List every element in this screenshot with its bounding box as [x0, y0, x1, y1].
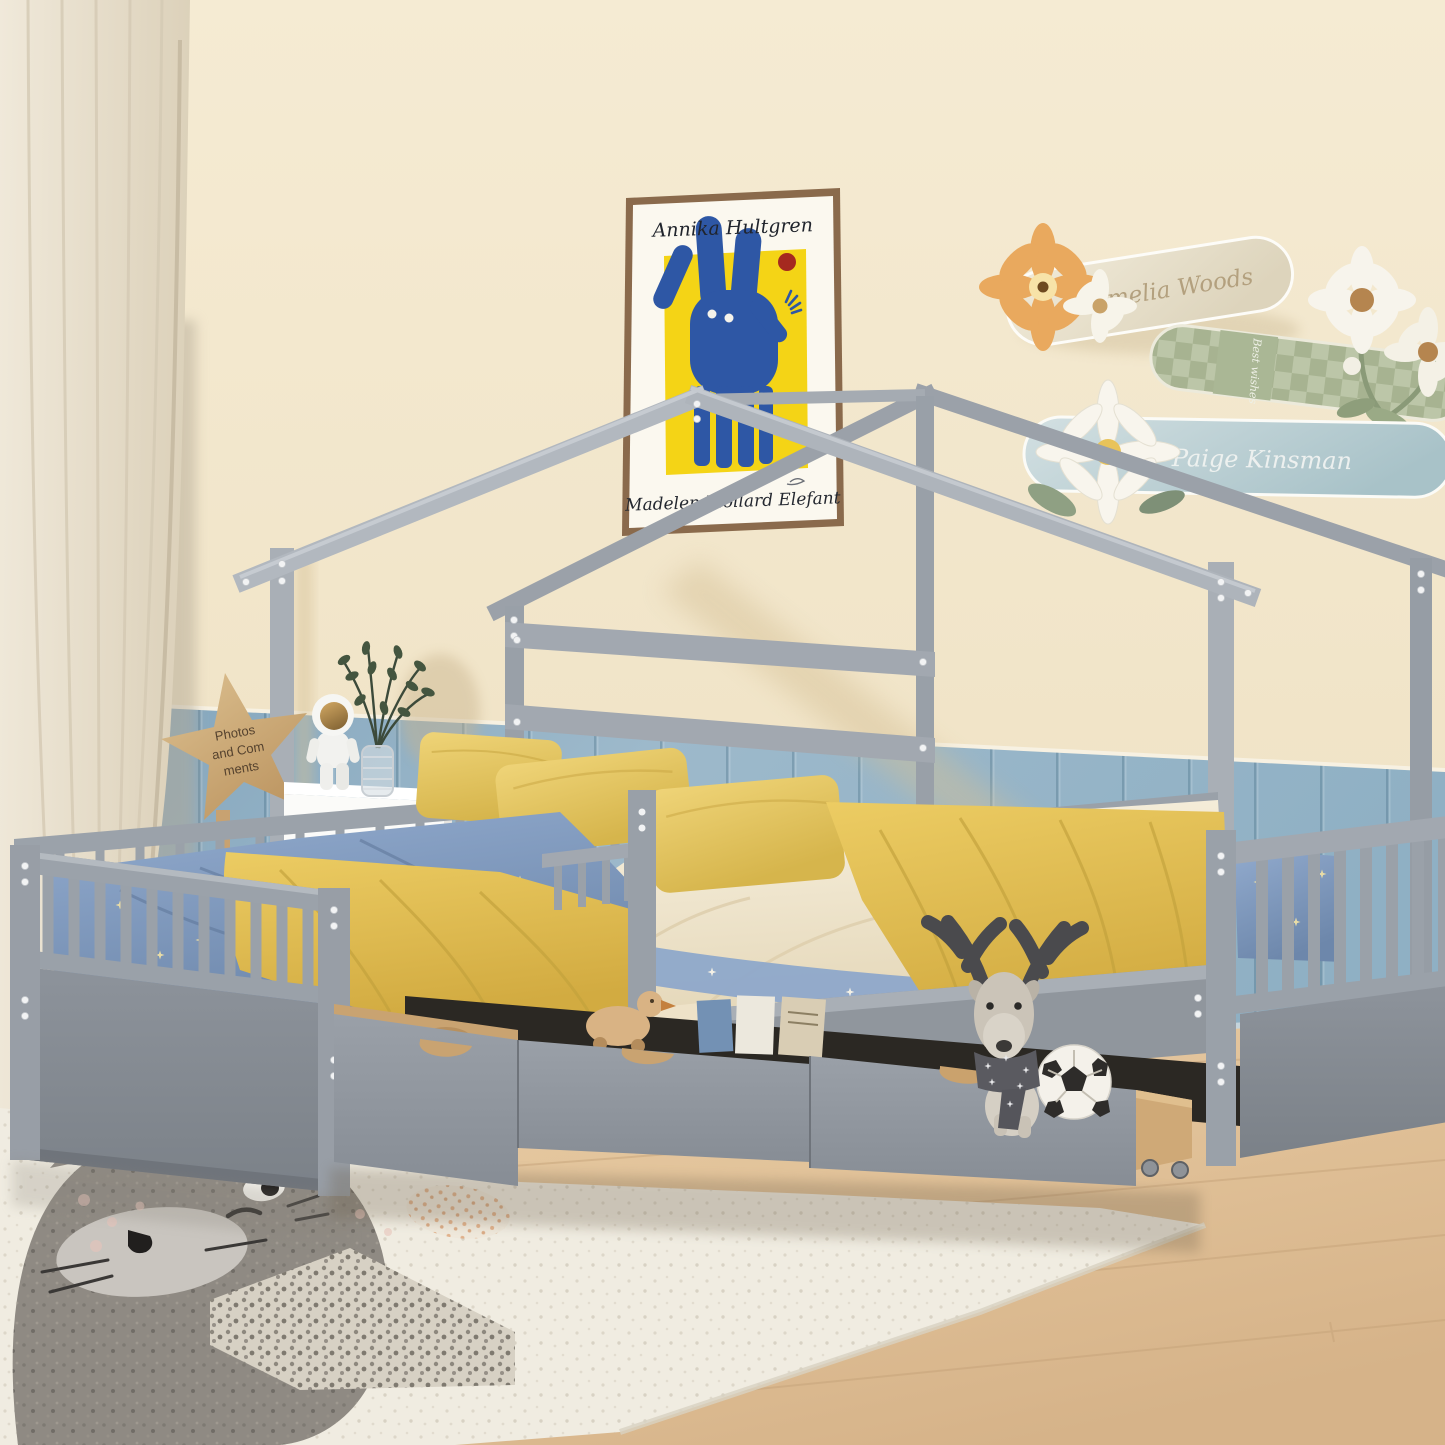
drawer-left-bed: [334, 1004, 518, 1186]
scene: Annika Hultgren Madelen Mollard Elefant …: [0, 0, 1445, 1445]
storage-books: [697, 995, 826, 1057]
right-bed-pillow-right: [646, 774, 846, 894]
ridge-beam: [697, 395, 925, 400]
footboard-post: [1206, 830, 1236, 1166]
poster-red-dot: [778, 253, 796, 271]
drawer-a-front: [334, 1014, 518, 1186]
rabbit-eye-right: [725, 314, 734, 323]
king-post: [916, 396, 934, 858]
rabbit-eye-left: [708, 310, 717, 319]
soccer-ball: [1037, 1045, 1111, 1119]
plaque-third-text: Paige Kinsman: [1171, 444, 1353, 475]
room-photo: Annika Hultgren Madelen Mollard Elefant …: [0, 0, 1445, 1445]
astronaut-visor: [320, 702, 348, 730]
caster-wheel-2: [1172, 1162, 1188, 1178]
caster-wheel-1: [1142, 1160, 1158, 1176]
reindeer-nose: [996, 1040, 1012, 1052]
